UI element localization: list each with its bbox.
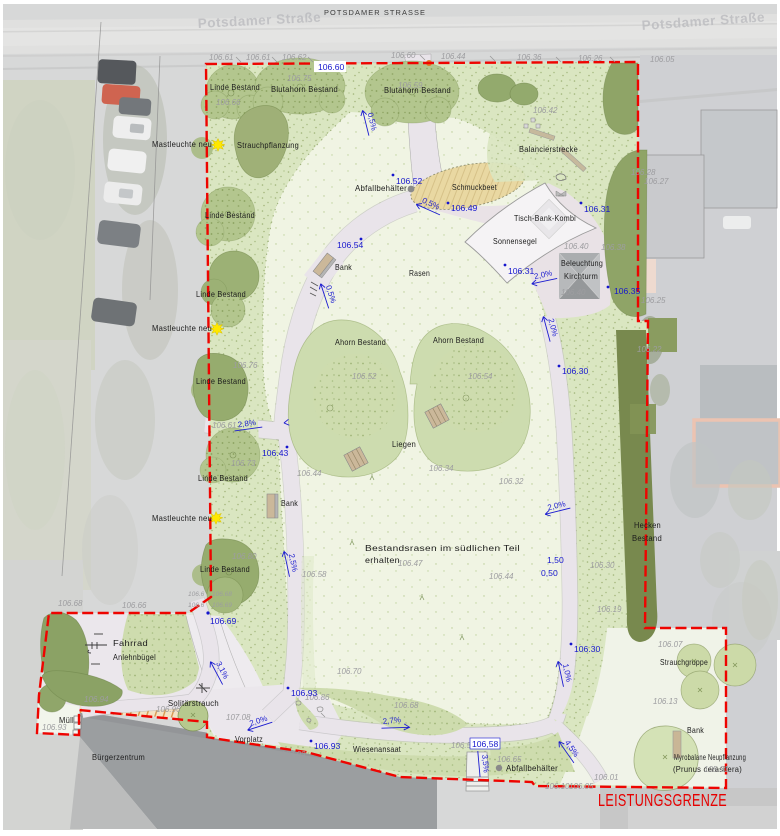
svg-text:106.40: 106.40 xyxy=(561,288,586,297)
svg-text:Schmuckbeet: Schmuckbeet xyxy=(452,182,497,192)
svg-text:106.60: 106.60 xyxy=(391,51,416,60)
svg-text:Bestand: Bestand xyxy=(632,533,662,543)
svg-text:Vorplatz: Vorplatz xyxy=(235,734,263,744)
svg-text:106.68: 106.68 xyxy=(58,599,83,608)
svg-text:107.10: 107.10 xyxy=(232,748,257,757)
svg-text:106.68: 106.68 xyxy=(212,591,232,598)
svg-text:106.43: 106.43 xyxy=(262,448,289,458)
svg-text:Mastleuchte neu: Mastleuchte neu xyxy=(152,139,212,149)
svg-text:Abfallbehälter: Abfallbehälter xyxy=(506,763,558,773)
svg-text:Strauchgruppe: Strauchgruppe xyxy=(660,657,708,667)
svg-text:106.80: 106.80 xyxy=(232,552,257,561)
svg-text:106.22: 106.22 xyxy=(637,345,662,354)
svg-text:Beleuchtung: Beleuchtung xyxy=(561,258,603,268)
svg-text:106.25: 106.25 xyxy=(641,296,666,305)
svg-text:106.65: 106.65 xyxy=(497,755,522,764)
svg-text:105.91: 105.91 xyxy=(704,765,728,774)
svg-text:Mastleuchte neu: Mastleuchte neu xyxy=(152,323,212,333)
svg-text:Bank: Bank xyxy=(687,725,704,735)
svg-text:2,7%: 2,7% xyxy=(382,715,401,726)
svg-text:106.70: 106.70 xyxy=(337,667,362,676)
svg-text:106.40: 106.40 xyxy=(564,242,589,251)
svg-text:Balancierstrecke: Balancierstrecke xyxy=(519,144,578,154)
svg-text:Bank: Bank xyxy=(281,498,298,508)
svg-text:106.05: 106.05 xyxy=(569,782,594,791)
svg-text:Ahorn Bestand: Ahorn Bestand xyxy=(335,337,386,347)
svg-text:Anlehnbügel: Anlehnbügel xyxy=(113,652,156,662)
svg-text:Linde Bestand: Linde Bestand xyxy=(196,376,246,386)
svg-text:106.47: 106.47 xyxy=(398,559,423,568)
svg-text:106.93: 106.93 xyxy=(42,723,67,732)
svg-text:Fahrrad: Fahrrad xyxy=(113,638,148,648)
svg-text:106.54: 106.54 xyxy=(337,240,364,250)
svg-text:106.6: 106.6 xyxy=(188,591,205,598)
svg-text:106.44: 106.44 xyxy=(489,572,514,581)
svg-text:Rasen: Rasen xyxy=(409,268,430,278)
svg-text:106.32: 106.32 xyxy=(499,477,524,486)
svg-text:106.93: 106.93 xyxy=(291,688,318,698)
svg-text:Ahorn Bestand: Ahorn Bestand xyxy=(433,335,484,345)
svg-text:106.26: 106.26 xyxy=(578,54,603,63)
svg-text:Bestandsrasen im südlichen Tei: Bestandsrasen im südlichen Teil xyxy=(365,543,520,553)
svg-text:106.61: 106.61 xyxy=(209,53,233,62)
svg-text:106.01: 106.01 xyxy=(594,773,618,782)
svg-text:106.76: 106.76 xyxy=(233,361,258,370)
svg-text:106.75: 106.75 xyxy=(287,74,312,83)
svg-text:Linde Bestand: Linde Bestand xyxy=(210,82,260,92)
svg-text:Linde Bestand: Linde Bestand xyxy=(200,564,250,574)
svg-text:106.30: 106.30 xyxy=(574,644,601,654)
svg-text:LEISTUNGSGRENZE: LEISTUNGSGRENZE xyxy=(598,791,727,811)
svg-text:106.10: 106.10 xyxy=(545,782,570,791)
svg-text:106.73: 106.73 xyxy=(231,459,256,468)
svg-text:1,50: 1,50 xyxy=(547,555,564,565)
svg-text:106.13: 106.13 xyxy=(653,697,678,706)
svg-text:Tisch-Bank-Kombi: Tisch-Bank-Kombi xyxy=(514,213,576,223)
svg-text:3,5%: 3,5% xyxy=(480,754,491,773)
svg-text:106.52: 106.52 xyxy=(352,372,377,381)
svg-text:106.19: 106.19 xyxy=(597,605,622,614)
svg-text:106.66: 106.66 xyxy=(122,601,147,610)
svg-text:106.36: 106.36 xyxy=(517,53,542,62)
svg-text:Sonnensegel: Sonnensegel xyxy=(493,236,537,246)
svg-text:106.62: 106.62 xyxy=(282,53,307,62)
svg-text:106.44: 106.44 xyxy=(297,469,322,478)
svg-text:106.07: 106.07 xyxy=(658,640,683,649)
svg-text:106.61: 106.61 xyxy=(212,421,236,430)
svg-text:107.08: 107.08 xyxy=(226,713,251,722)
svg-text:106.69: 106.69 xyxy=(212,602,232,609)
svg-text:Bank: Bank xyxy=(335,262,352,272)
svg-text:Strauchpflanzung: Strauchpflanzung xyxy=(237,140,299,150)
svg-text:106.49: 106.49 xyxy=(451,203,478,213)
svg-text:Kirchturm: Kirchturm xyxy=(564,271,598,281)
svg-text:106.30: 106.30 xyxy=(590,561,615,570)
svg-text:Wiesenansaat: Wiesenansaat xyxy=(353,744,401,754)
svg-text:106.31: 106.31 xyxy=(508,266,535,276)
svg-text:Linde Bestand: Linde Bestand xyxy=(196,289,246,299)
svg-text:Bürgerzentrum: Bürgerzentrum xyxy=(92,752,145,762)
svg-text:106.68: 106.68 xyxy=(394,701,419,710)
svg-text:106.61: 106.61 xyxy=(246,53,270,62)
svg-text:106.6: 106.6 xyxy=(188,602,205,609)
svg-text:106.60: 106.60 xyxy=(318,62,345,72)
svg-text:Mastleuchte neu: Mastleuchte neu xyxy=(152,513,212,523)
svg-text:106.59: 106.59 xyxy=(398,81,423,90)
svg-text:106.44: 106.44 xyxy=(441,52,466,61)
svg-text:106.66: 106.66 xyxy=(216,98,241,107)
svg-text:106.05: 106.05 xyxy=(650,55,675,64)
svg-text:106.30: 106.30 xyxy=(562,366,589,376)
svg-text:106.35: 106.35 xyxy=(614,286,641,296)
svg-text:erhalten: erhalten xyxy=(365,555,400,565)
svg-text:106,58: 106,58 xyxy=(472,739,499,749)
svg-text:106.54: 106.54 xyxy=(468,372,493,381)
svg-text:107.03: 107.03 xyxy=(281,750,306,759)
svg-text:POTSDAMER STRASSE: POTSDAMER STRASSE xyxy=(324,8,426,17)
svg-text:106.27: 106.27 xyxy=(644,177,669,186)
svg-text:106.38: 106.38 xyxy=(601,243,626,252)
svg-text:106.52: 106.52 xyxy=(396,176,423,186)
svg-text:0,50: 0,50 xyxy=(541,568,558,578)
svg-text:106.28: 106.28 xyxy=(631,168,656,177)
svg-text:Liegen: Liegen xyxy=(392,439,416,449)
svg-text:106.93: 106.93 xyxy=(314,741,341,751)
svg-text:Blutahorn Bestand: Blutahorn Bestand xyxy=(271,84,338,94)
svg-text:106.42: 106.42 xyxy=(533,106,558,115)
svg-text:Linde Bestand: Linde Bestand xyxy=(205,210,255,220)
svg-text:Linde Bestand: Linde Bestand xyxy=(198,473,248,483)
svg-text:106.58: 106.58 xyxy=(302,570,327,579)
svg-text:Hecken: Hecken xyxy=(634,520,661,530)
svg-text:106.31: 106.31 xyxy=(584,204,611,214)
svg-text:Myrobalane Neupflanzung: Myrobalane Neupflanzung xyxy=(674,752,746,762)
svg-text:106.94: 106.94 xyxy=(84,695,109,704)
svg-text:106.96: 106.96 xyxy=(156,705,181,714)
svg-text:106.69: 106.69 xyxy=(210,616,237,626)
svg-text:106.34: 106.34 xyxy=(429,464,454,473)
